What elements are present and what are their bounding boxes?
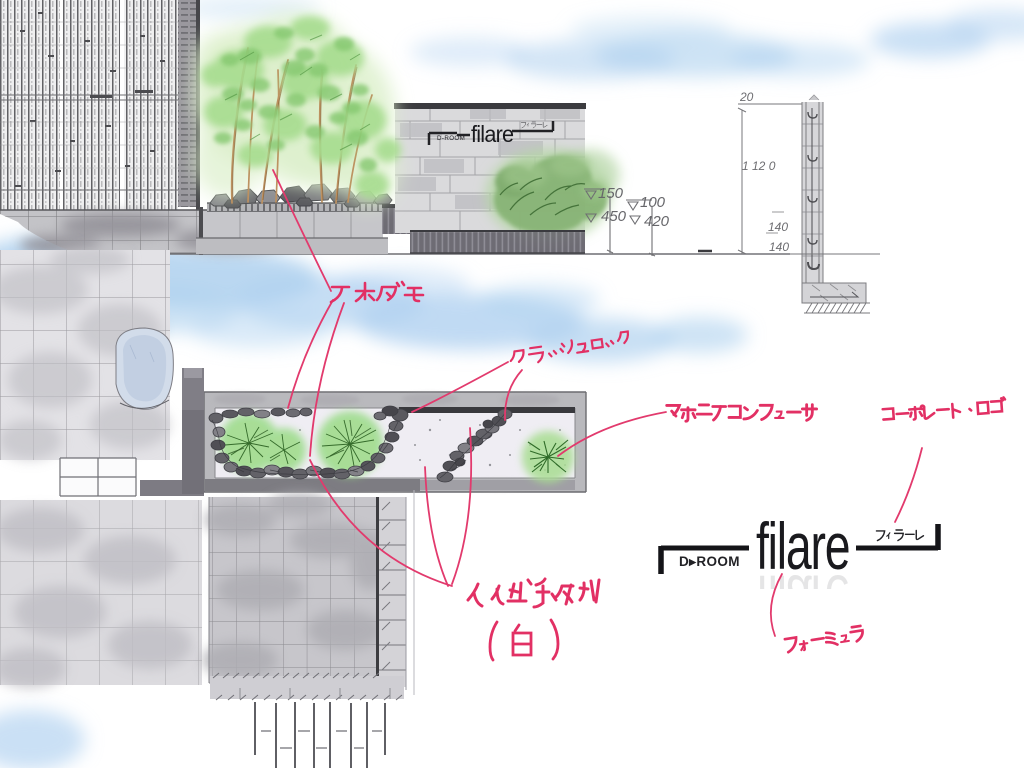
svg-text:20: 20 [739, 90, 754, 104]
svg-text:420: 420 [644, 213, 670, 230]
svg-text:100: 100 [640, 194, 666, 211]
svg-text:filare: filare [471, 121, 514, 147]
svg-text:150: 150 [598, 185, 624, 202]
svg-text:140: 140 [769, 240, 789, 254]
svg-text:D▸ROOM: D▸ROOM [679, 554, 740, 569]
svg-text:450: 450 [601, 208, 627, 225]
svg-text:1 12 0: 1 12 0 [742, 159, 776, 173]
svg-text:140: 140 [768, 220, 788, 234]
